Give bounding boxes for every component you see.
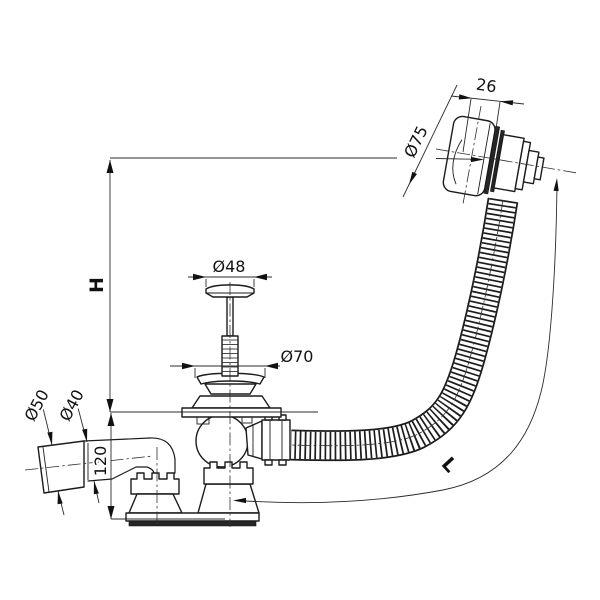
overflow-width-label: 26 <box>475 75 498 97</box>
socket-diameter-label: Ø50 <box>21 386 53 424</box>
h-arrowhead-bottom <box>107 399 114 412</box>
ball-body <box>196 415 248 467</box>
strainer-cone <box>192 396 270 408</box>
hose-nut-body <box>262 420 290 460</box>
column-nut-crown <box>204 462 253 484</box>
bath-drain-technical-drawing: alca alca <box>0 0 600 600</box>
dim50-arrowhead-bottom <box>55 491 62 505</box>
drain-strainer <box>182 373 281 417</box>
dim75-arrowhead <box>407 172 417 186</box>
hose-length-label: L <box>437 453 461 477</box>
dim120-arrowhead-bottom <box>108 506 115 519</box>
pipe-diameter-label: Ø40 <box>56 386 88 424</box>
outlet-socket <box>38 441 84 493</box>
dim40-arrowhead-bottom <box>91 481 98 495</box>
h-arrowhead-top <box>107 160 114 173</box>
dim48-arrowhead-right <box>254 274 267 280</box>
dimL-arrowhead-top <box>553 178 559 191</box>
hose-nut-tab <box>265 460 272 465</box>
dim48-arrowhead-left <box>193 274 206 280</box>
column-union-nut <box>204 462 253 484</box>
dim70-arrowhead-left <box>182 363 195 369</box>
elbow-nut-crown <box>131 473 179 494</box>
flexible-hose <box>291 200 503 446</box>
trap-height-label: 120 <box>91 446 110 477</box>
dimension-H: H <box>86 157 484 412</box>
base-plate <box>126 513 259 521</box>
cone-body <box>246 421 262 459</box>
hose-union-nut <box>262 415 290 465</box>
flange-diameter-label: Ø70 <box>281 347 314 366</box>
overflow-head <box>442 115 549 206</box>
height-label: H <box>86 277 108 293</box>
dim70-arrowhead-right <box>265 363 278 369</box>
elbow-union-nut <box>131 473 179 494</box>
technical-drawing-canvas: alca alca <box>0 0 600 600</box>
socket-body <box>38 441 84 493</box>
plug-diameter-label: Ø48 <box>213 257 246 276</box>
strainer-bowl <box>205 384 256 394</box>
dim120-arrowhead-top <box>108 413 115 426</box>
dim50-arrowhead-top <box>47 432 54 446</box>
hose-nut-tab <box>279 460 286 465</box>
dim26-arrowhead-right <box>500 99 513 106</box>
base-flare-left <box>129 494 182 513</box>
siphon-ball <box>196 415 252 467</box>
dim26-arrowhead-left <box>459 94 472 101</box>
hose-cone <box>246 421 262 459</box>
flange-plate <box>182 408 281 417</box>
base-flare-right <box>198 484 259 513</box>
cap-diameter-label: Ø75 <box>400 123 432 161</box>
hose-body <box>291 200 503 446</box>
base-seal-strip <box>129 521 256 526</box>
